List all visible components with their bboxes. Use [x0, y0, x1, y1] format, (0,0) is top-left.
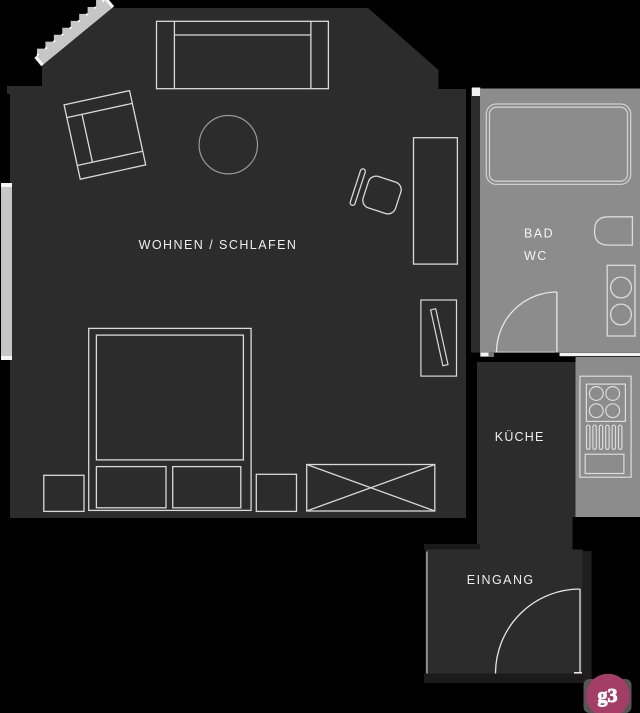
svg-text:g3: g3	[598, 685, 618, 707]
svg-text:WOHNEN / SCHLAFEN: WOHNEN / SCHLAFEN	[139, 238, 298, 252]
svg-text:KÜCHE: KÜCHE	[495, 430, 545, 444]
svg-text:EINGANG: EINGANG	[467, 573, 535, 587]
svg-text:BAD: BAD	[524, 227, 554, 241]
svg-text:WC: WC	[524, 249, 548, 263]
